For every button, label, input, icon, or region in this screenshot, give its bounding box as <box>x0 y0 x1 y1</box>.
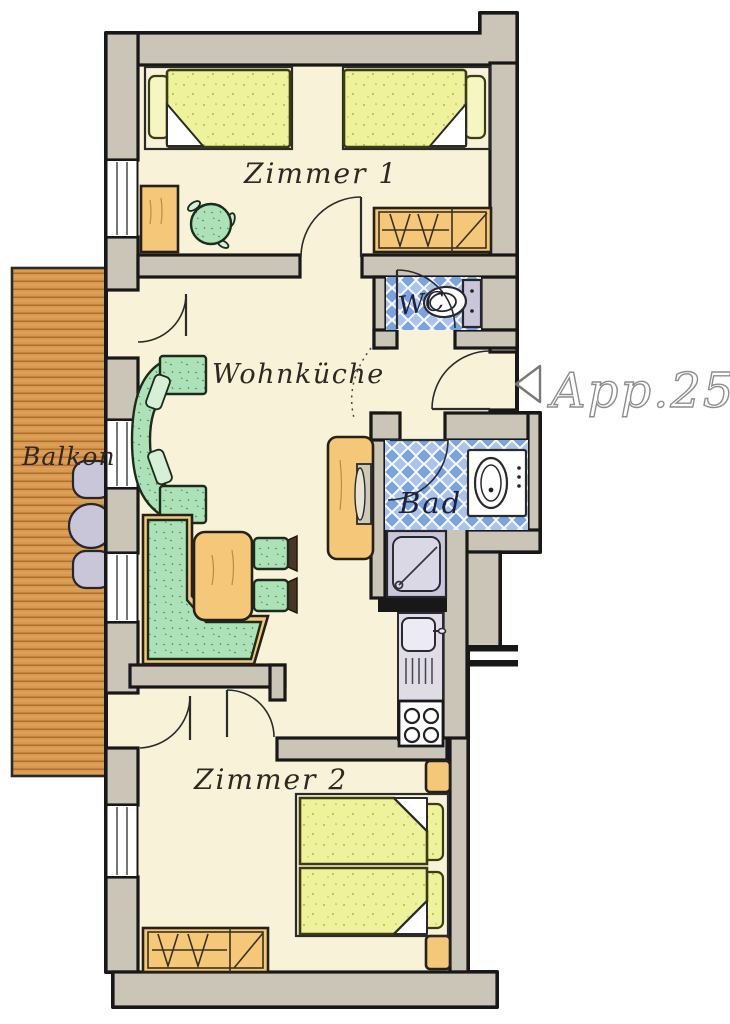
bed-single <box>343 67 490 149</box>
entry-arrow-icon <box>516 366 540 402</box>
bed-single <box>145 67 292 149</box>
wall-right-lower <box>450 738 468 972</box>
wall-zimmer2-north-left <box>130 665 285 687</box>
dining-chair <box>254 536 297 571</box>
wall-bottom <box>113 972 497 1007</box>
wall-break-mark <box>466 660 518 667</box>
nightstand <box>426 936 450 969</box>
wall-zimmer1-south <box>138 255 300 277</box>
dining-table <box>194 532 252 620</box>
balcony <box>12 268 113 776</box>
apartment-number-label: App.25 <box>547 363 730 419</box>
bad-label: Bad <box>398 486 462 520</box>
floorplan-canvas: Zimmer 1 Wohnküche Balkon WC Bad Zimmer … <box>0 0 730 1024</box>
double-bed <box>296 794 448 936</box>
wall-bad-north <box>445 413 540 440</box>
sideboard-tv <box>328 437 373 559</box>
wall-wc-south <box>374 330 397 348</box>
washbasin-icon <box>468 450 526 516</box>
wall-wc-south <box>455 330 517 348</box>
floor-plan-drawing: Zimmer 1 Wohnküche Balkon WC Bad Zimmer … <box>0 0 730 1024</box>
zimmer1-label: Zimmer 1 <box>243 157 398 190</box>
wardrobe <box>374 208 491 252</box>
wall-left <box>106 237 138 290</box>
desk <box>141 186 178 252</box>
wardrobe <box>143 928 268 972</box>
window <box>107 553 138 622</box>
apartment-entry-label: App.25 <box>516 363 730 419</box>
kitchen-unit <box>398 613 446 746</box>
wohnkueche-label: Wohnküche <box>212 359 385 390</box>
wc-label: WC <box>397 286 447 321</box>
wall-kitchen-north <box>378 598 447 612</box>
wall-zimmer1-south <box>362 255 517 277</box>
window <box>107 160 138 237</box>
wall-column-right <box>465 552 500 647</box>
zimmer2-label: Zimmer 2 <box>193 763 348 796</box>
wall-wc-right <box>481 277 517 330</box>
wall-left <box>106 488 138 553</box>
nightstand <box>426 761 450 792</box>
wall-left <box>106 748 138 805</box>
stove-icon <box>399 701 443 746</box>
dining-chair <box>254 578 297 613</box>
window <box>107 805 138 877</box>
wall-top <box>138 13 517 65</box>
balkon-label: Balkon <box>21 442 116 471</box>
wall-left <box>106 33 138 160</box>
wall-bad-north <box>371 413 400 440</box>
shower-icon <box>387 531 446 597</box>
wall-left <box>106 877 138 972</box>
wall-zimmer2-jog <box>270 665 285 700</box>
wall-break-mark <box>466 645 518 652</box>
